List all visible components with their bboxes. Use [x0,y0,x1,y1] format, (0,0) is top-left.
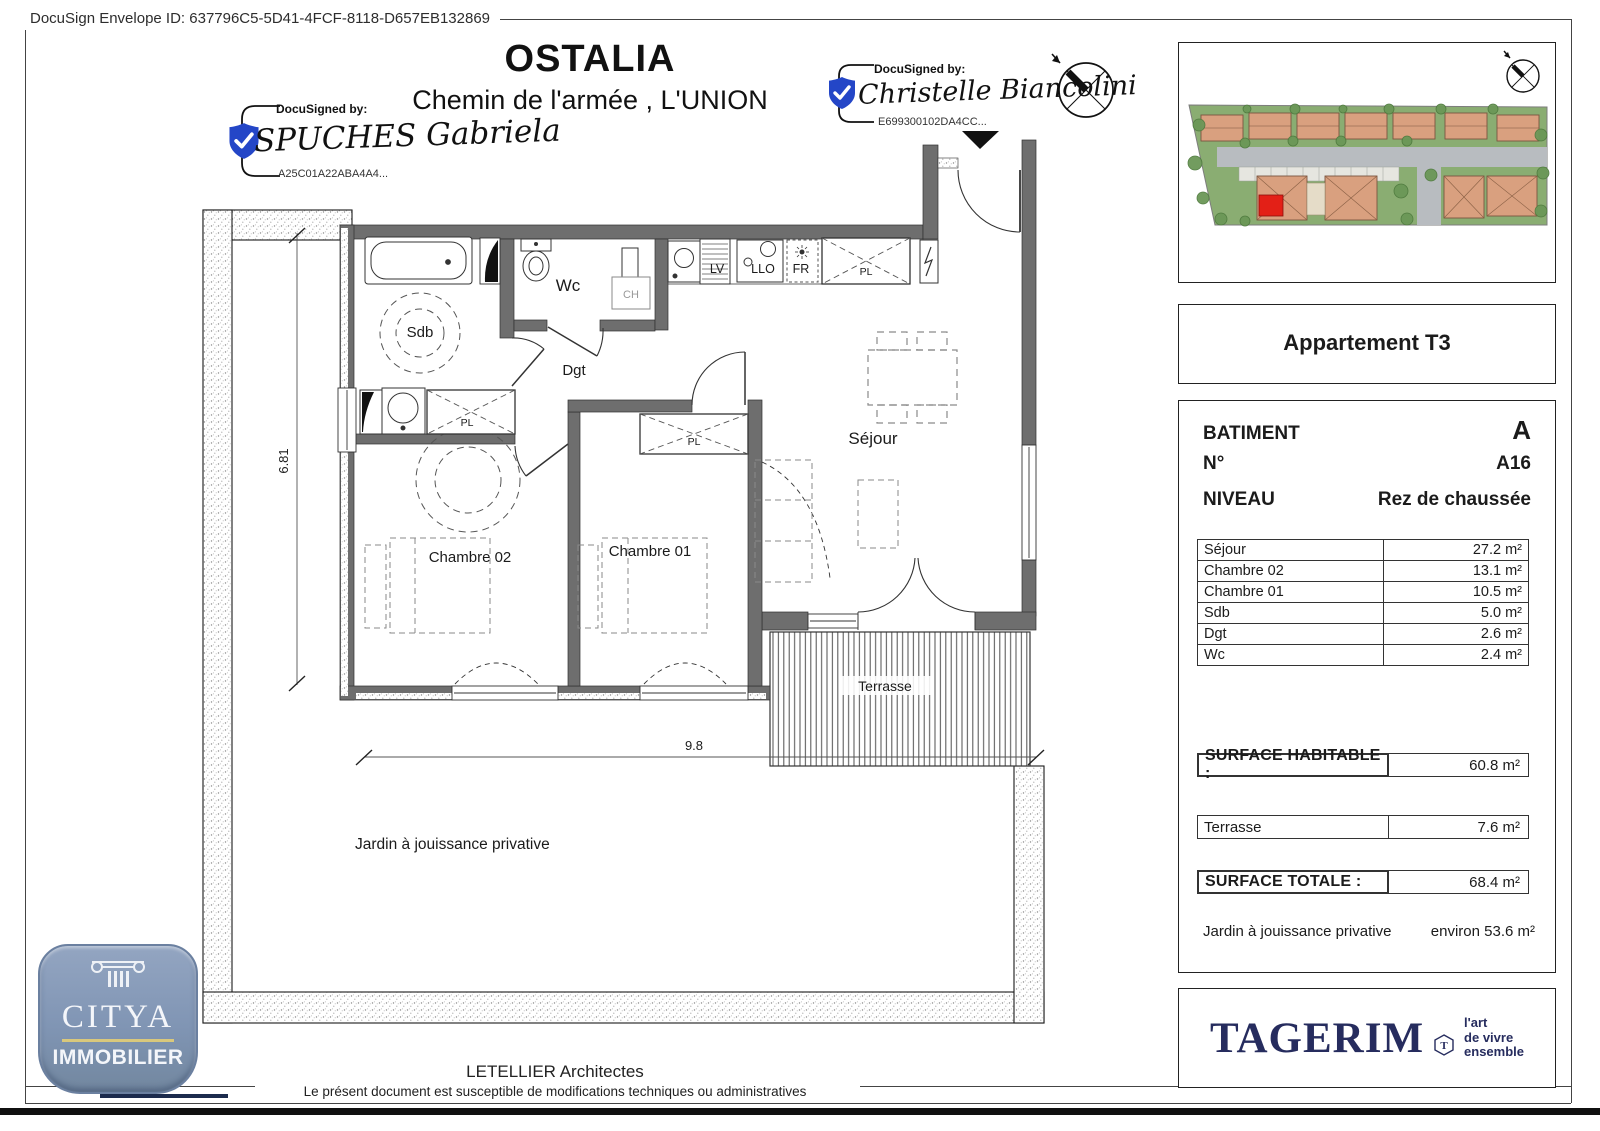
batiment-label: BATIMENT [1203,423,1300,445]
dimension-height: 6.81 [276,448,291,473]
table-row: Séjour27.2 m² [1198,540,1529,561]
table-row: Sdb5.0 m² [1198,603,1529,624]
citya-logo: CITYA IMMOBILIER [38,944,198,1100]
fixture-label-pl: PL [860,266,873,278]
citya-base-bar [100,1094,228,1098]
table-row: Chambre 0110.5 m² [1198,582,1529,603]
terrasse-surface-row: Terrasse 7.6 m² [1197,815,1529,839]
citya-column-icon [86,956,150,992]
tagerim-tagline: l'art de vivre ensemble [1464,1016,1524,1060]
page-border-left [25,30,26,1103]
surface-totale-row: SURFACE TOTALE : 68.4 m² [1197,870,1529,894]
closet-chambre01 [640,414,748,454]
room-label-terrasse: Terrasse [858,678,912,694]
room-label-sdb: Sdb [407,324,434,341]
svg-text:T: T [1440,1040,1448,1052]
site-road [1217,147,1547,167]
architect-credit: LETELLIER Architectes [300,1062,810,1082]
fixture-label-pl: PL [688,436,701,448]
fixture-label-ch: CH [623,289,639,301]
linen-cabinet [480,238,500,284]
garden-label: Jardin à jouissance privative [355,836,550,853]
wall-insulation [341,228,348,696]
docusigned-by-label: DocuSigned by: [276,102,367,116]
fixture-label-fr: FR [793,262,810,276]
citya-gold-divider [62,1039,174,1042]
site-plan [1179,43,1554,281]
fixture-label-lv: LV [710,262,725,276]
citya-shield: CITYA IMMOBILIER [38,944,198,1094]
docusign-shield-icon [828,76,856,110]
niveau-label: NIVEAU [1203,489,1275,511]
page-border-bottom [25,1103,1571,1104]
toilet [521,239,551,281]
fixture-label-pl: PL [461,417,474,429]
room-label-chambre01: Chambre 01 [609,543,692,560]
north-compass-icon [1046,50,1124,128]
apartment-title: Appartement T3 [1179,305,1555,381]
header-rule [500,19,1571,20]
floor-plan: Sdb Wc Dgt Séjour Chambre 02 Chambre 01 … [190,120,1070,1040]
wall-insulation [938,158,958,168]
terrace-decking [770,632,1030,766]
site-plan-panel [1178,42,1556,283]
table-row: Chambre 0213.1 m² [1198,561,1529,582]
dining-table [868,332,957,423]
document-page: { "page": { "envelope_id": "DocuSign Env… [0,0,1600,1131]
washbasin [360,388,425,434]
bathtub [365,237,472,284]
table-row: Dgt2.6 m² [1198,624,1529,645]
citya-subtitle: IMMOBILIER [40,1046,196,1070]
surface-habitable-row: SURFACE HABITABLE : 60.8 m² [1197,753,1529,777]
electrical-panel [920,240,938,283]
jardin-surface-row: Jardin à jouissance privative environ 53… [1203,923,1535,940]
kitchen-sink [668,241,700,282]
project-title: OSTALIA [350,38,830,81]
batiment-value: A [1512,415,1531,446]
sofa [755,460,898,582]
fixture-label-llo: LLO [751,262,775,276]
tagerim-logo: TAGERIM [1210,1014,1424,1063]
footer-disclaimer: Le présent document est susceptible de m… [250,1084,860,1099]
page-bottom-bar [0,1108,1600,1115]
site-lobby [1307,183,1325,215]
apartment-info-panel: BATIMENT A N° A16 NIVEAU Rez de chaussée… [1178,400,1556,973]
room-label-dgt: Dgt [562,362,586,379]
entrance-arrow-icon [962,131,999,149]
docusigned-by-label: DocuSigned by: [874,62,965,76]
site-compass-icon [1504,51,1539,92]
room-label-wc: Wc [556,276,581,295]
tagerim-hex-icon: T [1434,1034,1454,1056]
apartment-title-panel: Appartement T3 [1178,304,1556,384]
tagerim-panel: TAGERIM T l'art de vivre ensemble [1178,988,1556,1088]
citya-name: CITYA [40,999,196,1036]
numero-label: N° [1203,453,1224,475]
room-areas-table: Séjour27.2 m² Chambre 0213.1 m² Chambre … [1197,539,1529,666]
docusign-envelope-id: DocuSign Envelope ID: 637796C5-5D41-4FCF… [30,10,490,27]
room-label-chambre02: Chambre 02 [429,549,512,566]
page-border-right [1571,19,1572,1103]
dimension-width: 9.8 [685,738,703,753]
table-row: Wc2.4 m² [1198,645,1529,666]
highlighted-unit [1259,195,1283,216]
niveau-value: Rez de chaussée [1378,489,1531,511]
room-label-sejour: Séjour [848,429,897,448]
numero-value: A16 [1496,453,1531,475]
